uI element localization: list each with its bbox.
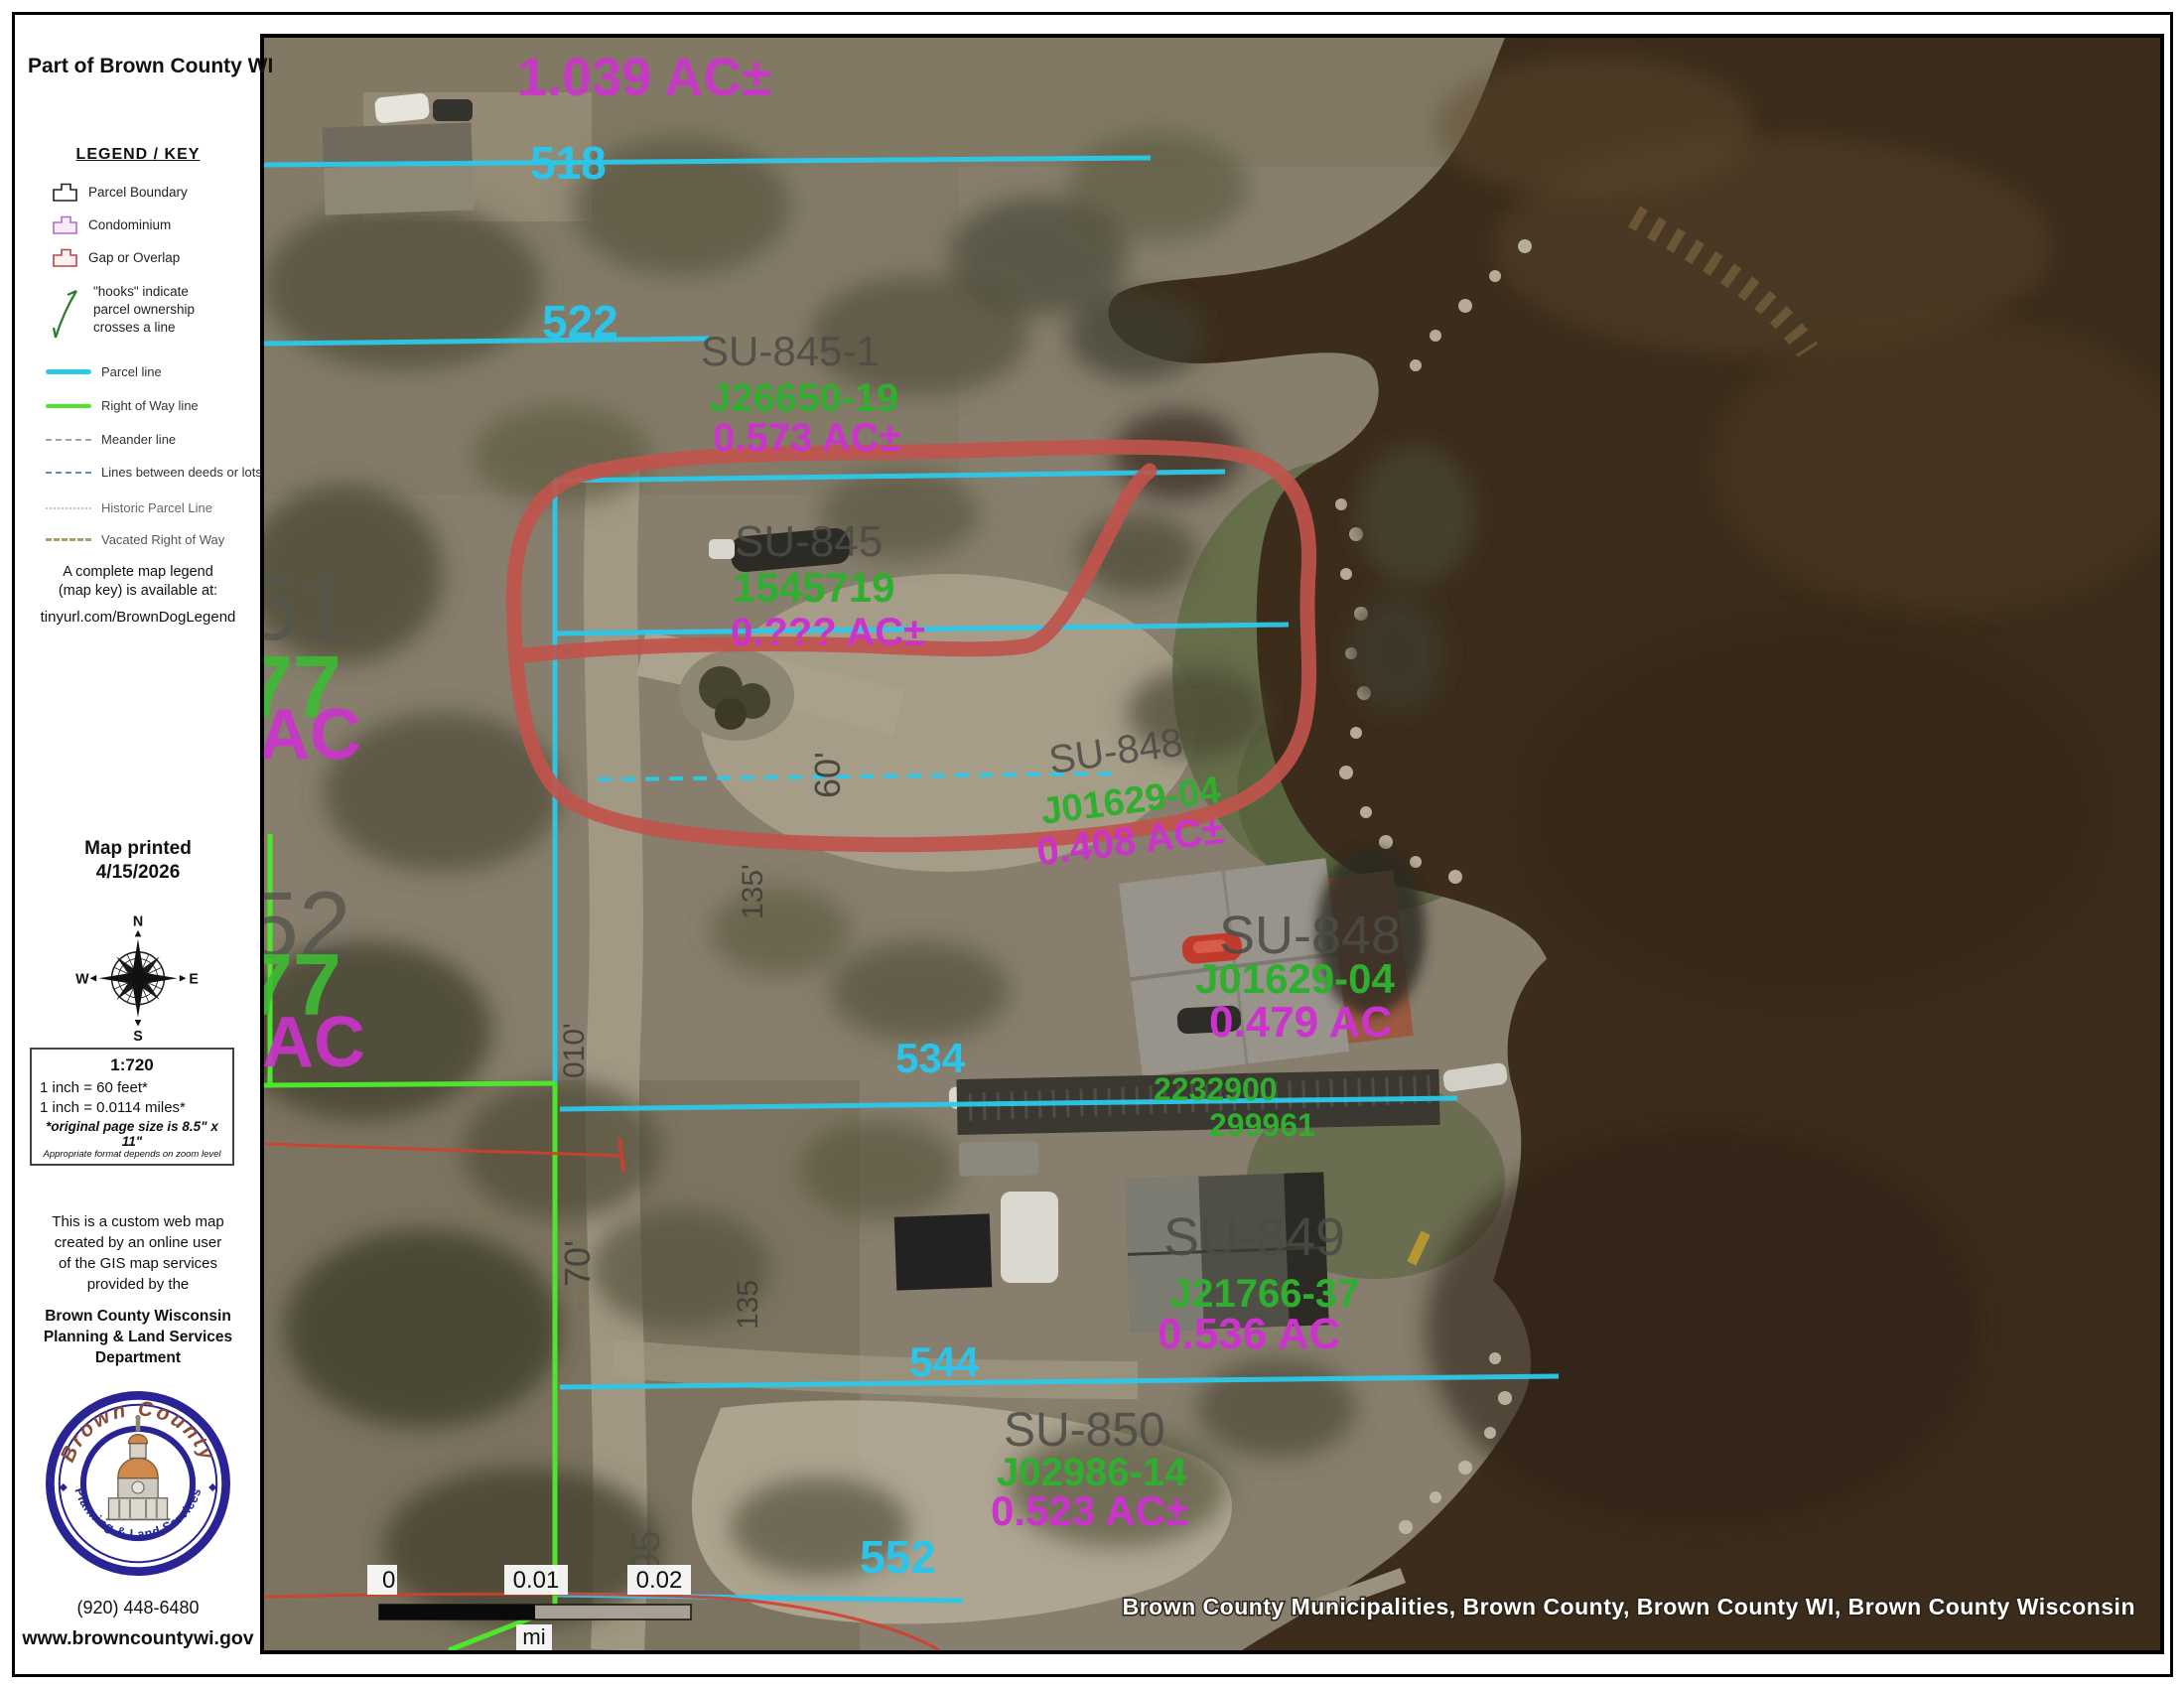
compass-s: S [133, 1029, 143, 1042]
document-label: 2232900 [1154, 1071, 1278, 1107]
legend-item-parcel-boundary: Parcel Boundary [16, 182, 296, 203]
parcel-id-label: SU-845-1 [701, 328, 880, 374]
scale-ratio: 1:720 [40, 1055, 224, 1075]
scale-info-box: 1:720 1 inch = 60 feet* 1 inch = 0.0114 … [30, 1048, 234, 1166]
dimension-label: 010' [558, 1023, 591, 1078]
legend-item-label: Parcel Boundary [88, 185, 188, 200]
compass-icon: N E S W [72, 911, 204, 1042]
dimension-label: 70' [557, 1240, 598, 1287]
legend-item-label: Condominium [88, 217, 171, 232]
meander-line-swatch [46, 439, 91, 441]
parcel-boundary-icon [52, 182, 78, 203]
acreage-label: 0.573 AC± [713, 416, 901, 460]
acreage-label: 0.479 AC [1209, 998, 1392, 1047]
scalebar-tick-1: 0.01 [513, 1567, 560, 1594]
acreage-label: 0.??? AC± [731, 611, 925, 654]
legend-item-label: Gap or Overlap [88, 250, 180, 265]
legend-item-right-of-way: Right of Way line [16, 398, 290, 413]
parcel-number-label: 544 [909, 1338, 980, 1385]
parcel-number-label: 522 [542, 296, 618, 348]
map-print-page: Part of Brown County WI LEGEND / KEY Par… [0, 0, 2184, 1688]
legend-note: A complete map legend (map key) is avail… [16, 563, 260, 601]
map-canvas: 1.039 AC± 518 SU-845-1 J26650-19 0.573 A… [260, 34, 2164, 1654]
map-attribution: Brown County Municipalities, Brown Count… [1123, 1594, 2135, 1619]
contact-phone: (920) 448-6480 [16, 1598, 260, 1618]
acreage-label: 1.039 AC± [517, 48, 771, 107]
hooks-note: "hooks" indicate parcel ownership crosse… [93, 283, 195, 343]
legend-item-meander-line: Meander line [16, 432, 290, 447]
legend-item-gap-overlap: Gap or Overlap [16, 247, 296, 268]
deed-lines-swatch [46, 472, 91, 474]
gap-overlap-icon [52, 247, 78, 268]
document-label: J01629-04 [1195, 955, 1395, 1002]
county-logo: Brown County Planning & Land Services [16, 1390, 260, 1582]
legend-item-vacated-row: Vacated Right of Way [16, 532, 290, 547]
legend-item-historic-parcel-line: Historic Parcel Line [16, 500, 290, 515]
acreage-label: AC [264, 695, 361, 774]
parcel-number-label: 518 [530, 137, 607, 189]
parcel-id-label: SU-845 [735, 517, 883, 566]
acreage-label: AC [264, 1003, 365, 1082]
dimension-label: 60' [807, 752, 848, 798]
compass-w: W [75, 972, 89, 988]
department-name: Brown County Wisconsin Planning & Land S… [16, 1306, 260, 1368]
county-seal-icon: Brown County Planning & Land Services [45, 1390, 231, 1577]
parcel-line-swatch [46, 369, 91, 374]
vacated-row-swatch [46, 538, 91, 541]
compass-rose: N E S W [16, 911, 260, 1047]
document-label: 1545719 [733, 564, 895, 611]
scale-format-note: Appropriate format depends on zoom level [40, 1149, 224, 1160]
document-label: J26650-19 [709, 376, 898, 420]
compass-n: N [133, 914, 143, 929]
parcel-id-label: SU-849 [1163, 1207, 1345, 1267]
document-label: 299961 [1209, 1107, 1315, 1143]
scale-feet: 1 inch = 60 feet* [40, 1079, 224, 1096]
scalebar-unit: mi [522, 1624, 545, 1649]
right-of-way-swatch [46, 404, 91, 408]
compass-e: E [189, 972, 199, 988]
aerial-map: 1.039 AC± 518 SU-845-1 J26650-19 0.573 A… [264, 38, 2160, 1650]
about-text: This is a custom web map created by an o… [16, 1211, 260, 1295]
map-printed-date: Map printed 4/15/2026 [16, 837, 260, 885]
dimension-label: 135 [732, 1280, 764, 1330]
legend-item-deed-lines: Lines between deeds or lots [16, 465, 290, 480]
scale-page-note: *original page size is 8.5" x 11" [40, 1119, 224, 1149]
acreage-label: 0.523 AC± [991, 1487, 1188, 1534]
white-rv [1001, 1192, 1058, 1283]
condominium-icon [52, 214, 78, 235]
parcel-number-label: 552 [860, 1531, 936, 1583]
historic-line-swatch [46, 507, 91, 509]
scale-miles: 1 inch = 0.0114 miles* [40, 1099, 224, 1116]
legend-item-condominium: Condominium [16, 214, 296, 235]
contact-website: www.browncountywi.gov [16, 1627, 260, 1650]
parcel-number-label: 534 [895, 1035, 966, 1081]
scalebar-tick-0: 0 [382, 1567, 395, 1594]
legend-url: tinyurl.com/BrownDogLegend [16, 609, 260, 626]
legend-item-parcel-line: Parcel line [16, 364, 290, 379]
parcel-id-label: SU-850 [1004, 1404, 1165, 1457]
legend-heading: LEGEND / KEY [16, 146, 260, 164]
hooks-icon [50, 283, 81, 343]
page-title: Part of Brown County WI [16, 55, 272, 78]
scalebar-tick-2: 0.02 [636, 1567, 683, 1594]
legend-item-hooks: "hooks" indicate parcel ownership crosse… [16, 283, 294, 343]
acreage-label: 0.536 AC [1158, 1310, 1340, 1358]
sidebar: Part of Brown County WI LEGEND / KEY Par… [16, 15, 260, 1671]
dimension-label: 135' [737, 864, 769, 919]
